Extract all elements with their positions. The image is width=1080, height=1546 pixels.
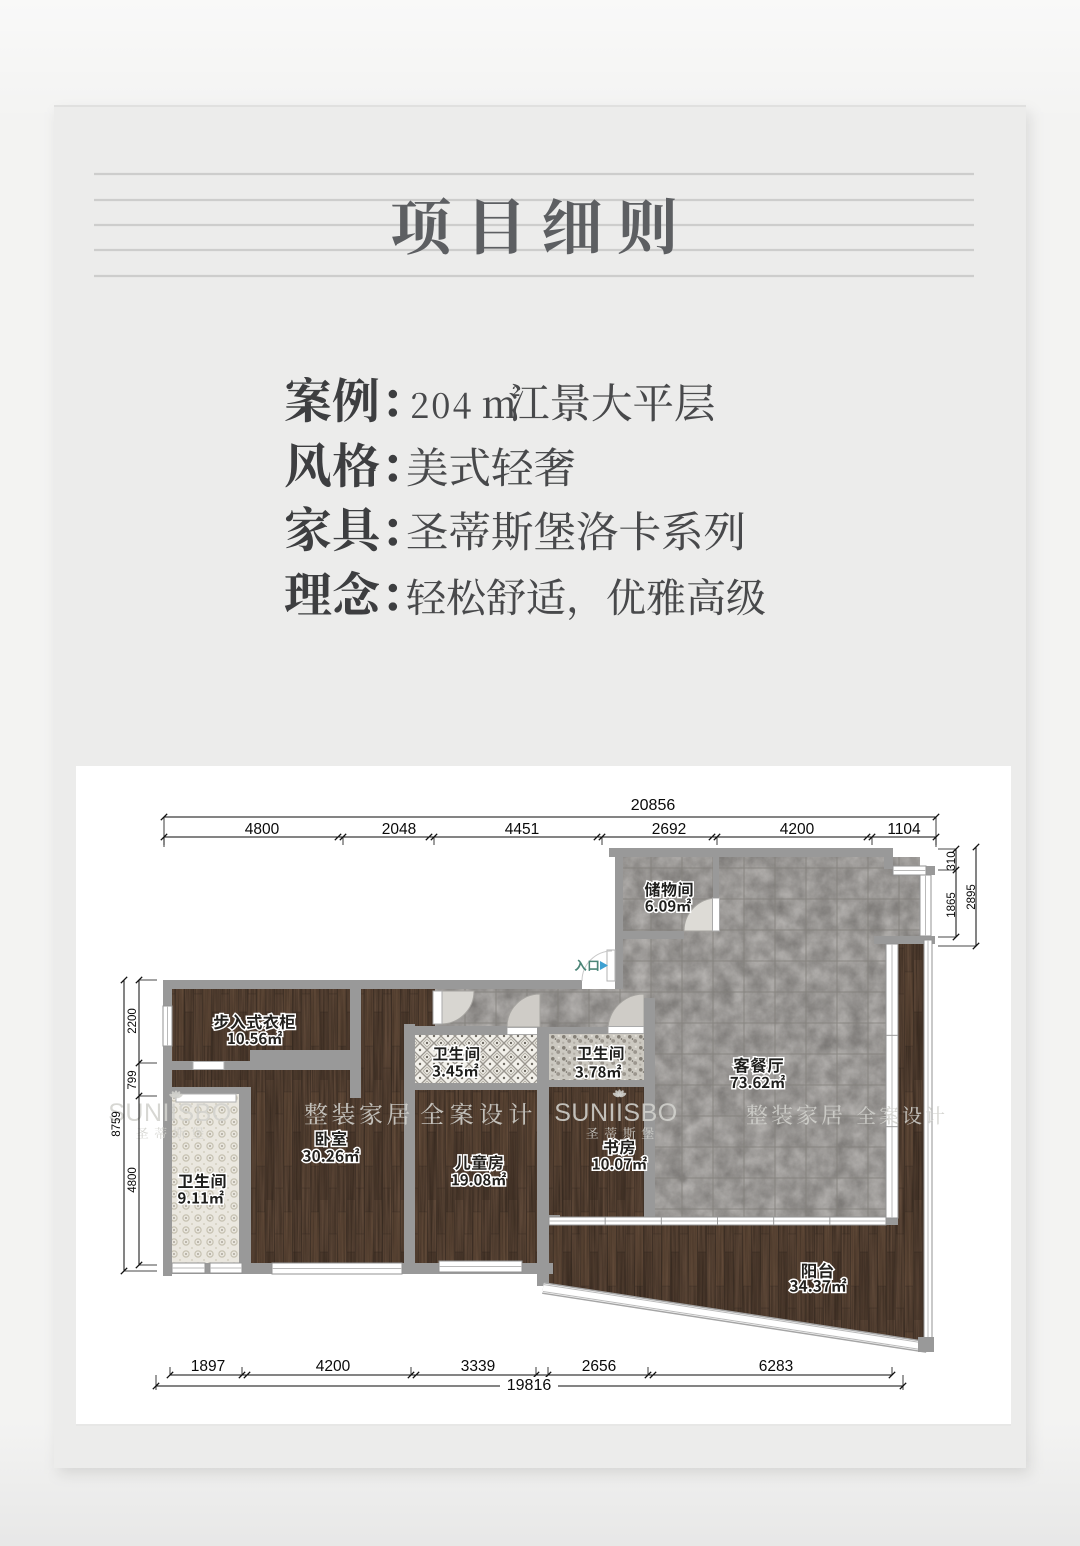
svg-text:2895: 2895 xyxy=(966,884,978,910)
svg-text:6283: 6283 xyxy=(759,1358,793,1375)
svg-text:1897: 1897 xyxy=(191,1358,225,1375)
svg-text:1104: 1104 xyxy=(887,821,921,838)
svg-text:799: 799 xyxy=(127,1070,139,1089)
svg-text:8759: 8759 xyxy=(111,1111,123,1137)
svg-text:2656: 2656 xyxy=(582,1358,616,1375)
svg-text:310: 310 xyxy=(946,851,958,870)
svg-text:SUNIISBO: SUNIISBO xyxy=(108,1099,231,1127)
svg-text:19816: 19816 xyxy=(507,1377,552,1394)
svg-text:3339: 3339 xyxy=(461,1358,495,1375)
svg-text:2200: 2200 xyxy=(127,1008,139,1034)
svg-text:SUNIISBO: SUNIISBO xyxy=(554,1099,677,1127)
svg-text:1865: 1865 xyxy=(946,892,958,918)
svg-text:20856: 20856 xyxy=(631,797,676,814)
svg-text:4800: 4800 xyxy=(245,821,280,838)
svg-text:4451: 4451 xyxy=(505,821,539,838)
svg-text:4200: 4200 xyxy=(316,1358,351,1375)
svg-text:4800: 4800 xyxy=(127,1167,139,1193)
svg-text:2048: 2048 xyxy=(382,821,416,838)
svg-text:4200: 4200 xyxy=(780,821,815,838)
svg-text:2692: 2692 xyxy=(652,821,686,838)
